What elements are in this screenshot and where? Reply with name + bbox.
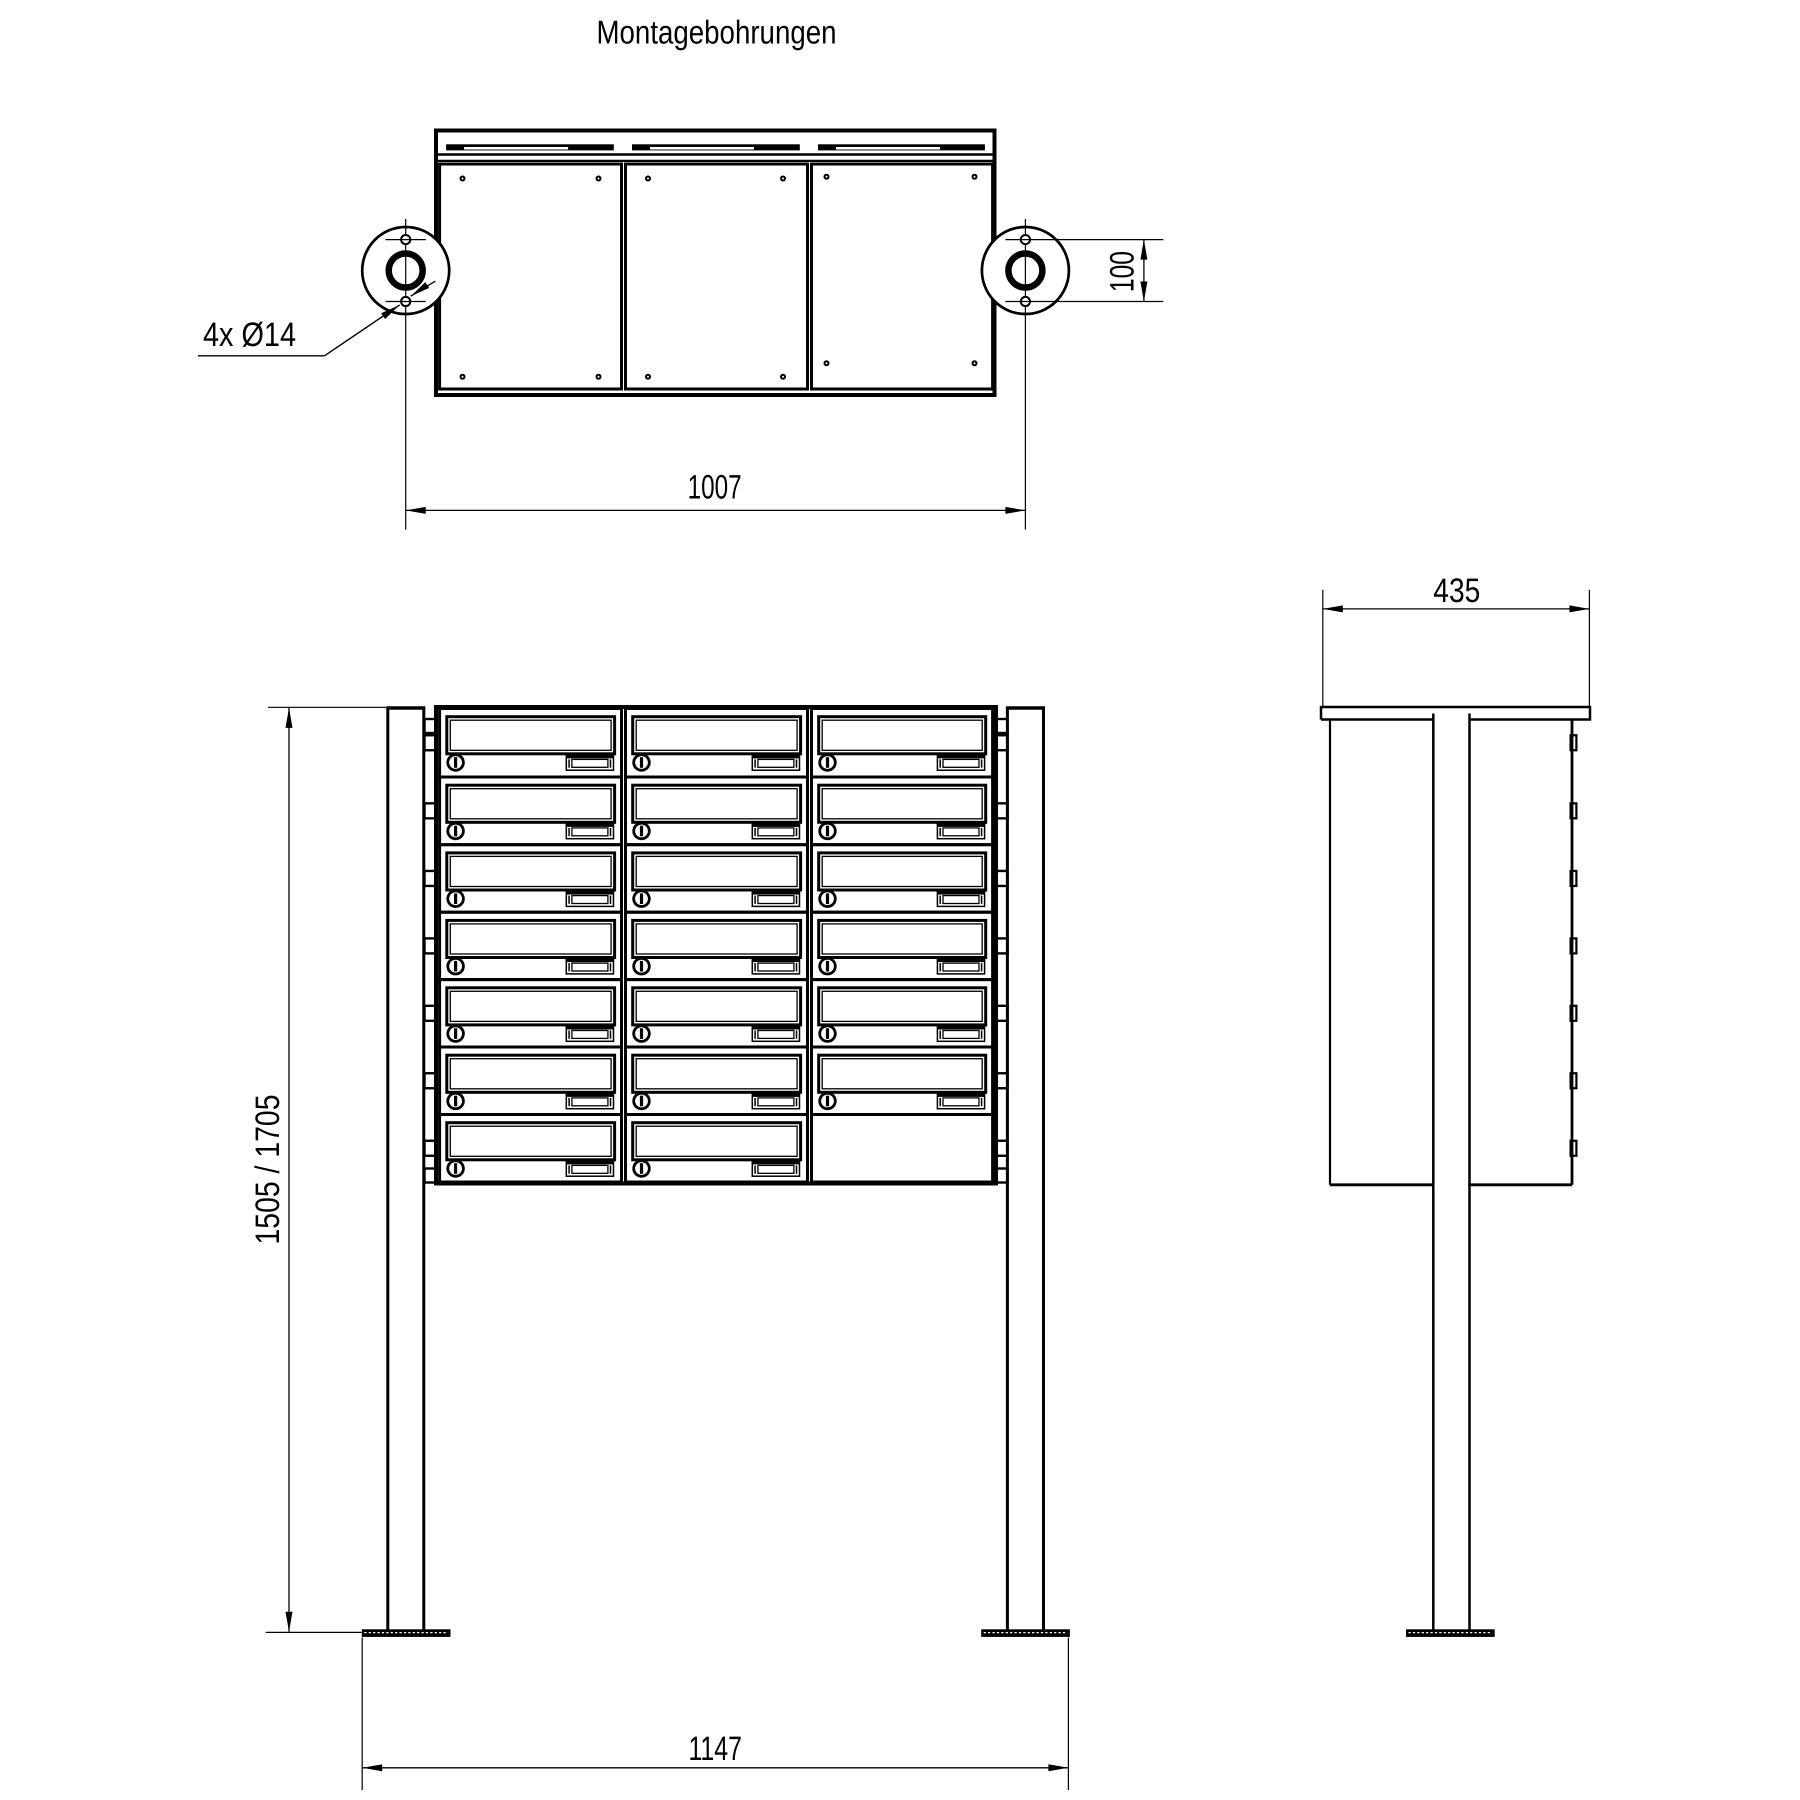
svg-text:1007: 1007 [688,468,742,506]
svg-text:1147: 1147 [688,1730,742,1768]
svg-text:435: 435 [1433,572,1480,610]
svg-text:1505 / 1705: 1505 / 1705 [249,1095,287,1245]
svg-text:100: 100 [1104,251,1142,292]
svg-text:4x Ø14: 4x Ø14 [203,316,296,354]
svg-text:Montagebohrungen: Montagebohrungen [597,14,837,51]
